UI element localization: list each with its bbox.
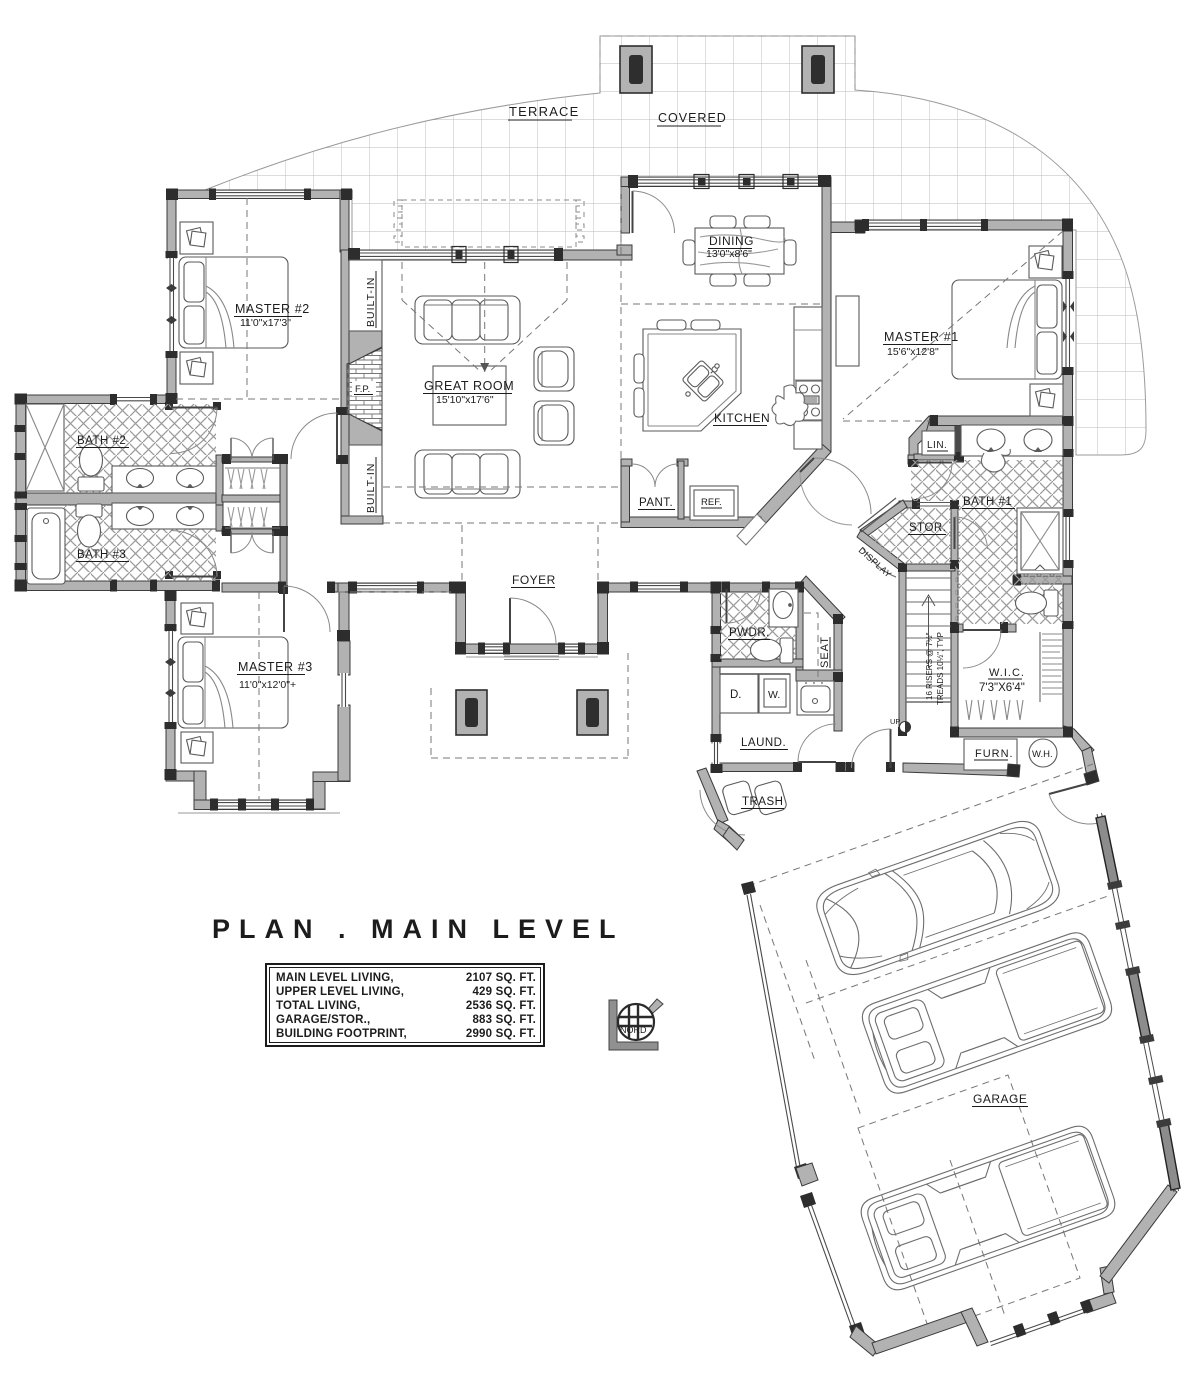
svg-text:GREAT ROOM: GREAT ROOM (424, 379, 514, 393)
svg-text:FURN.: FURN. (975, 748, 1014, 760)
svg-text:KITCHEN: KITCHEN (714, 411, 770, 425)
svg-text:TRASH: TRASH (742, 796, 783, 808)
svg-text:SEAT: SEAT (819, 636, 831, 668)
svg-text:MASTER #2: MASTER #2 (235, 302, 310, 316)
svg-text:11'0"x17'3": 11'0"x17'3" (240, 317, 291, 329)
svg-text:15'10"x17'6": 15'10"x17'6" (436, 394, 494, 406)
svg-text:BATH #1: BATH #1 (963, 496, 1012, 508)
svg-text:13'0"x8'6": 13'0"x8'6" (706, 248, 752, 260)
svg-text:TOTAL LIVING,: TOTAL LIVING, (276, 1000, 360, 1012)
svg-text:PWDR.: PWDR. (729, 627, 770, 639)
svg-text:BUILT-IN: BUILT-IN (365, 277, 377, 327)
svg-text:2990 SQ. FT.: 2990 SQ. FT. (466, 1028, 536, 1040)
svg-text:BATH #3: BATH #3 (77, 549, 126, 561)
svg-text:DINING: DINING (709, 234, 754, 248)
svg-text:883 SQ. FT.: 883 SQ. FT. (472, 1014, 536, 1026)
svg-text:MAIN LEVEL LIVING,: MAIN LEVEL LIVING, (276, 972, 394, 984)
svg-text:REF.: REF. (701, 497, 722, 508)
svg-text:GARAGE/STOR.,: GARAGE/STOR., (276, 1014, 370, 1026)
svg-text:MASTER #3: MASTER #3 (238, 660, 313, 674)
svg-text:W.: W. (768, 689, 780, 701)
svg-text:PANT.: PANT. (639, 497, 673, 509)
svg-text:UP: UP (890, 717, 900, 726)
svg-text:PLAN . MAIN LEVEL: PLAN . MAIN LEVEL (212, 914, 625, 944)
svg-text:STOR.: STOR. (909, 522, 946, 534)
svg-text:LIN.: LIN. (927, 440, 947, 451)
svg-text:LAUND.: LAUND. (741, 737, 786, 749)
svg-text:2536 SQ. FT.: 2536 SQ. FT. (466, 1000, 536, 1012)
svg-text:TERRACE: TERRACE (509, 104, 580, 119)
svg-text:2107 SQ. FT.: 2107 SQ. FT. (466, 972, 536, 984)
svg-text:TREADS 10½", TYP: TREADS 10½", TYP (936, 632, 945, 705)
svg-text:NORD: NORD (620, 1025, 647, 1035)
svg-text:W.I.C.: W.I.C. (989, 667, 1025, 679)
svg-text:W.H.: W.H. (1032, 749, 1053, 760)
svg-text:BUILDING FOOTPRINT,: BUILDING FOOTPRINT, (276, 1028, 407, 1040)
svg-text:16 RISERS @ 7½": 16 RISERS @ 7½" (925, 632, 934, 700)
svg-text:D.: D. (730, 689, 742, 701)
svg-text:7'3"X6'4": 7'3"X6'4" (979, 682, 1025, 694)
svg-text:429 SQ. FT.: 429 SQ. FT. (472, 986, 536, 998)
svg-text:BUILT-IN: BUILT-IN (365, 463, 377, 513)
svg-text:COVERED: COVERED (658, 111, 727, 125)
svg-text:GARAGE: GARAGE (973, 1092, 1027, 1106)
svg-text:11'0"x12'0"+: 11'0"x12'0"+ (239, 679, 296, 691)
svg-text:UPPER LEVEL LIVING,: UPPER LEVEL LIVING, (276, 986, 404, 998)
svg-text:MASTER #1: MASTER #1 (884, 330, 959, 344)
svg-text:BATH #2: BATH #2 (77, 435, 126, 447)
svg-text:F.P.: F.P. (355, 384, 370, 395)
svg-text:FOYER: FOYER (512, 573, 556, 587)
svg-text:15'6"x12'8": 15'6"x12'8" (887, 346, 939, 358)
